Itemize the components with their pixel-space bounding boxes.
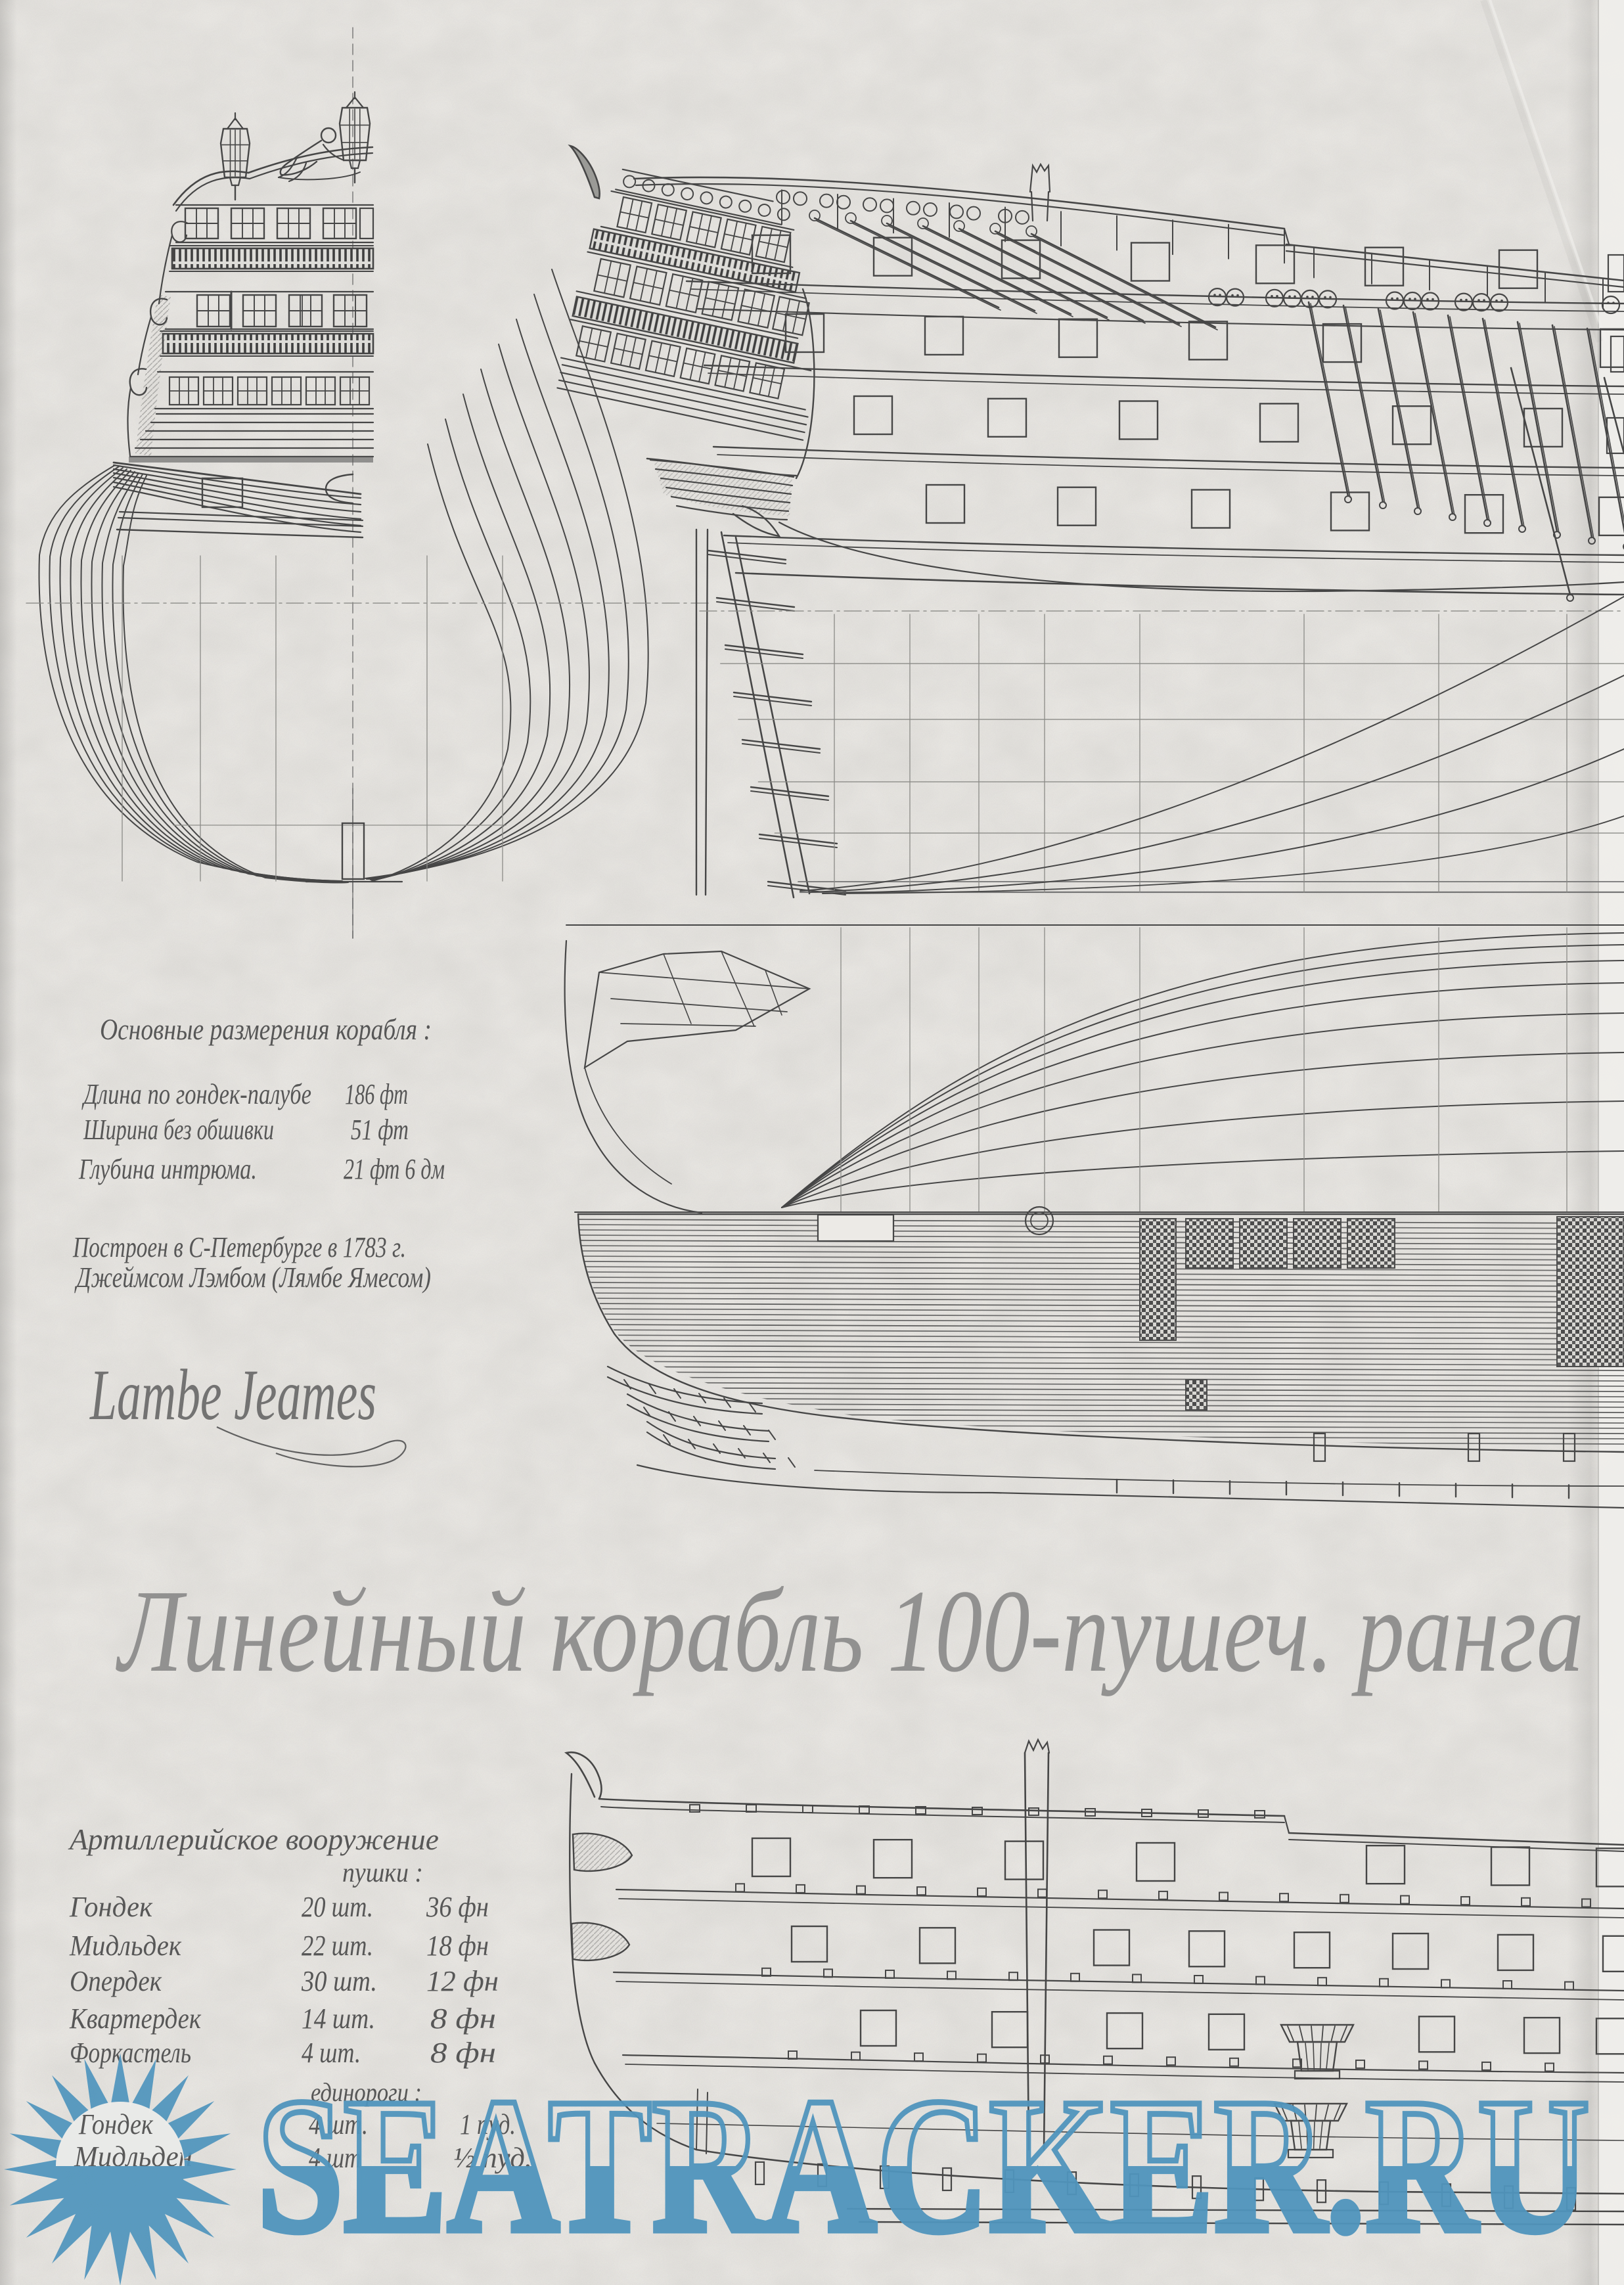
svg-text:22 шт.: 22 шт. <box>302 1930 373 1962</box>
svg-text:Lambe Jeames: Lambe Jeames <box>89 1355 376 1435</box>
svg-text:21 фт 6 дм: 21 фт 6 дм <box>344 1153 445 1185</box>
svg-text:186 фт: 186 фт <box>345 1078 408 1110</box>
svg-text:12 фн: 12 фн <box>426 1965 499 1997</box>
svg-text:Артиллерийское вооружение: Артиллерийское вооружение <box>68 1822 439 1856</box>
svg-text:Длина по гондек-палубе: Длина по гондек-палубе <box>81 1078 311 1110</box>
svg-text:51 фт: 51 фт <box>351 1114 409 1146</box>
svg-text:Гондек: Гондек <box>69 1891 152 1923</box>
svg-text:Основные размерения корабля :: Основные размерения корабля : <box>100 1012 432 1046</box>
svg-text:30 шт.: 30 шт. <box>301 1965 377 1997</box>
svg-text:Ширина без обшивки: Ширина без обшивки <box>83 1114 274 1146</box>
svg-text:18 фн: 18 фн <box>426 1930 489 1962</box>
svg-text:Построен в С-Петербурге в 1783: Построен в С-Петербурге в 1783 г. <box>72 1231 406 1263</box>
svg-text:36 фн: 36 фн <box>426 1891 489 1923</box>
svg-text:20 шт.: 20 шт. <box>302 1891 373 1923</box>
svg-text:Опердек: Опердек <box>70 1965 162 1997</box>
svg-text:Гондек: Гондек <box>78 2108 153 2140</box>
svg-text:Глубина интрюма.: Глубина интрюма. <box>78 1153 257 1185</box>
svg-text:Джеймсом Лэмбом (Лямбе Ямесом): Джеймсом Лэмбом (Лямбе Ямесом) <box>74 1261 431 1294</box>
svg-text:Линейный корабль 100-пушеч. ра: Линейный корабль 100-пушеч. ранга <box>116 1566 1584 1696</box>
svg-text:пушки :: пушки : <box>342 1858 423 1888</box>
svg-text:Квартердек: Квартердек <box>69 2002 201 2035</box>
svg-text:8 фн: 8 фн <box>430 2002 496 2035</box>
svg-text:Форкастель: Форкастель <box>70 2037 191 2069</box>
svg-text:Мидльдек: Мидльдек <box>69 1930 181 1962</box>
svg-text:14 шт.: 14 шт. <box>302 2002 375 2035</box>
